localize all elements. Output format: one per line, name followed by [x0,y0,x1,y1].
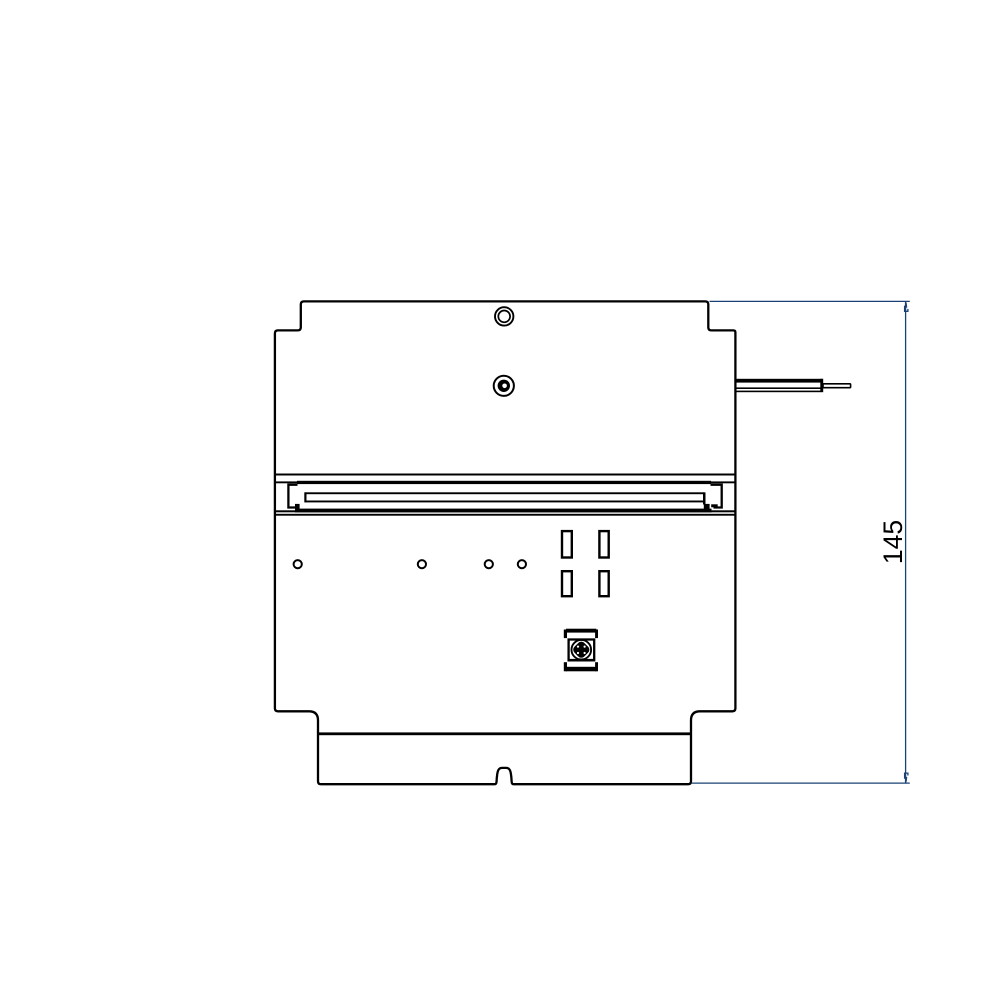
svg-text:145: 145 [878,520,908,564]
